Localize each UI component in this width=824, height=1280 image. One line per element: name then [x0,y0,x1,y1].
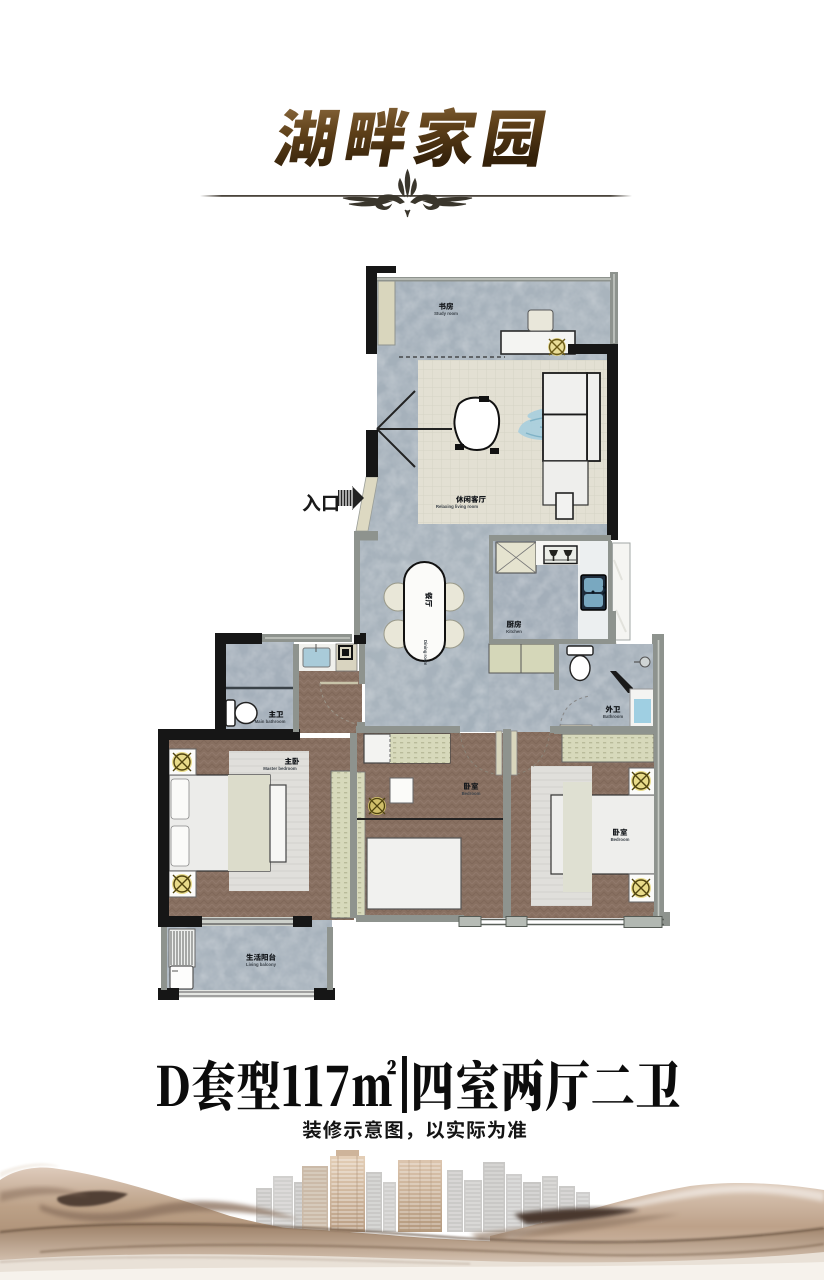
svg-text:Main bathroom: Main bathroom [255,719,286,724]
svg-text:Relaxing living room: Relaxing living room [436,504,478,509]
svg-text:Kitchen: Kitchen [506,629,522,634]
svg-text:Master bedroom: Master bedroom [263,766,297,771]
svg-text:Bedroom: Bedroom [611,837,630,842]
svg-text:Dining room: Dining room [423,640,428,665]
svg-text:Bedroom: Bedroom [462,791,481,796]
svg-text:Living balcony: Living balcony [246,962,277,967]
svg-text:Study room: Study room [434,311,458,316]
svg-text:Bathroom: Bathroom [603,714,623,719]
